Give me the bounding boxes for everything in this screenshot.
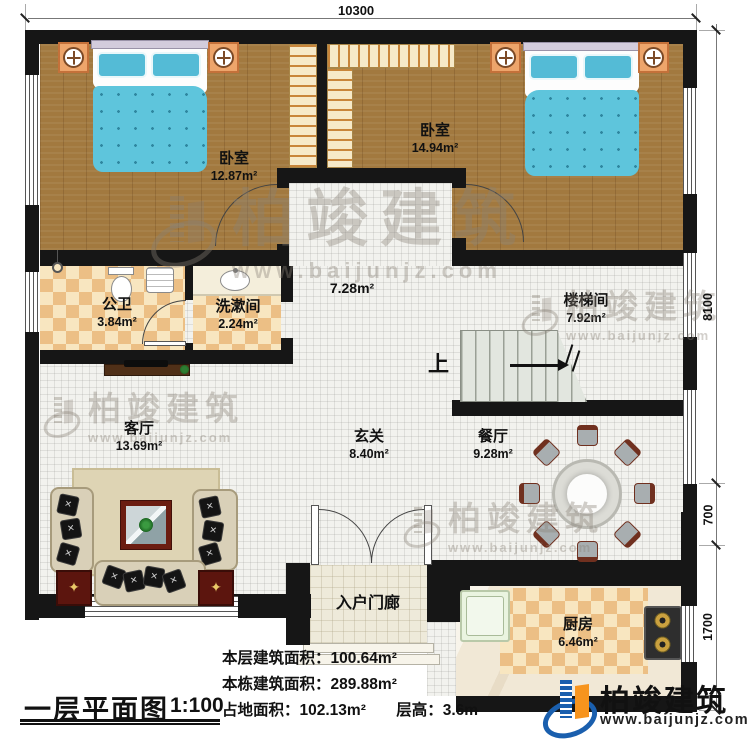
page-scale: 1:100 (170, 694, 224, 718)
room-label-washroom: 洗漱间 2.24m² (215, 298, 260, 332)
extension-line (699, 483, 725, 484)
dimension-label-right-mid: 700 (701, 505, 715, 526)
hall-notch-floor (289, 183, 452, 266)
toilet-tank (108, 267, 134, 275)
window-dining-right (683, 390, 697, 484)
nightstand (208, 42, 239, 73)
door-panel-bathroom (144, 341, 186, 346)
bathroom-name: 公卫 (97, 296, 137, 315)
kitchen-name: 厨房 (558, 616, 598, 635)
bed-pillow (529, 54, 579, 80)
bed-pillow (583, 54, 633, 80)
side-table (198, 570, 234, 606)
tv-icon (124, 360, 168, 367)
stat-label: 层高： (396, 702, 443, 719)
lamp-icon (643, 47, 664, 68)
stat-value: 289.88m² (331, 676, 397, 693)
wall-bath-divider-a (185, 266, 193, 300)
right-dimension-line (716, 24, 717, 712)
window-kitchen-right (681, 606, 697, 662)
kitchen-sink-basin (466, 596, 504, 636)
bed-headboard (523, 42, 641, 51)
washroom-name: 洗漱间 (215, 298, 260, 317)
window-bedroom1-left (25, 75, 39, 205)
wardrobe-bedroom2-side (327, 68, 353, 168)
plant-icon (180, 365, 189, 374)
dimension-label-right-lower: 1700 (701, 613, 715, 641)
stat-label: 占地面积： (222, 702, 300, 719)
top-dimension-line (28, 18, 696, 19)
wall-bedroom1-right-b (277, 244, 289, 266)
wall-under-closets (283, 168, 458, 183)
stairs-arrow-line (510, 364, 560, 367)
window-bathroom-left (25, 272, 39, 332)
nightstand (638, 42, 669, 73)
nightstand (490, 42, 521, 73)
brand-website: www.baijunjz.com (600, 712, 749, 728)
extension-line (699, 545, 725, 546)
stat-label: 本栋建筑面积： (222, 676, 331, 693)
wall-porch-left (286, 563, 310, 645)
dining-name: 餐厅 (473, 428, 513, 447)
bed-pillow (151, 52, 201, 78)
wardrobe-bedroom2-top (327, 44, 455, 68)
dining-chair (634, 483, 655, 504)
stat-value: 3.6m (443, 702, 478, 719)
stat-building-area: 本栋建筑面积：289.88m² (222, 672, 397, 694)
dimension-label-top: 10300 (338, 3, 374, 18)
room-label-hall: 7.28m² (330, 280, 374, 298)
lamp-icon (213, 47, 234, 68)
stairwell-name: 楼梯间 (563, 292, 608, 311)
extension-line (699, 30, 725, 31)
room-label-dining: 餐厅 9.28m² (473, 428, 513, 462)
sink-basin (220, 270, 250, 291)
plant-icon (139, 518, 153, 532)
stairwell-area: 7.92m² (563, 311, 608, 327)
room-label-living: 客厅 13.69m² (116, 420, 163, 454)
room-label-bedroom2: 卧室 14.94m² (412, 122, 459, 156)
title-underline (20, 719, 220, 725)
wall-kitchen-top (456, 560, 697, 586)
wall-washroom-right-a (281, 266, 293, 302)
living-area: 13.69m² (116, 439, 163, 455)
sofa-pillow (60, 518, 83, 541)
bed-duvet (525, 90, 639, 176)
bed-duvet (93, 86, 207, 172)
pendant-light-icon (52, 262, 63, 273)
window-stairwell-right (683, 253, 697, 337)
bathroom-area: 3.84m² (97, 315, 137, 331)
room-label-kitchen: 厨房 6.46m² (558, 616, 598, 650)
room-label-foyer: 玄关 8.40m² (349, 428, 389, 462)
sofa-pillow (56, 493, 80, 517)
kitchen-area: 6.46m² (558, 635, 598, 651)
stat-value: 102.13m² (300, 702, 366, 719)
stairs-up-label: 上 (428, 348, 449, 378)
dimension-label-right-upper: 8100 (701, 293, 715, 321)
wall-bedroom-divider (317, 30, 327, 170)
foyer-area: 8.40m² (349, 447, 389, 463)
sofa-pillow (198, 495, 222, 519)
washer-icon (146, 267, 174, 293)
floor-plan-canvas: 上 卧室 12.87m² 卧室 14.94m² 公卫 3.84m² (0, 0, 750, 745)
sofa-pillow (202, 520, 225, 543)
stat-land-area: 占地面积：102.13m² 层高：3.6m (222, 698, 478, 720)
wall-bedroom2-door-b (452, 238, 466, 266)
nightstand (58, 42, 89, 73)
living-name: 客厅 (116, 420, 163, 439)
dining-area: 9.28m² (473, 447, 513, 463)
wardrobe-bedroom1 (289, 44, 317, 168)
bed-pillow (97, 52, 147, 78)
lamp-icon (63, 47, 84, 68)
wall-stairs-bottom (452, 400, 683, 416)
side-table (56, 570, 92, 606)
burner-icon (654, 612, 671, 629)
room-label-bedroom1: 卧室 12.87m² (211, 150, 258, 184)
wall-bedroom2-door-a (452, 168, 466, 188)
dining-chair (577, 541, 598, 562)
brand-logo-icon (542, 676, 598, 736)
burner-icon (654, 636, 671, 653)
stat-label: 本层建筑面积： (222, 650, 331, 667)
wall-mid-left (40, 250, 277, 266)
room-label-porch: 入户门廊 (336, 594, 400, 614)
washroom-area: 2.24m² (215, 317, 260, 333)
bedroom2-name: 卧室 (412, 122, 459, 141)
dining-chair (577, 425, 598, 446)
faucet-icon (233, 268, 238, 273)
stat-floor-area: 本层建筑面积：100.64m² (222, 646, 397, 668)
foyer-name: 玄关 (349, 428, 389, 447)
bedroom1-area: 12.87m² (211, 169, 258, 185)
entry-door-left-panel (311, 505, 319, 565)
window-bedroom2-right (683, 88, 697, 194)
hall-area: 7.28m² (330, 280, 374, 298)
bed-headboard (91, 40, 209, 49)
porch-name: 入户门廊 (336, 594, 400, 614)
room-label-stairwell: 楼梯间 7.92m² (563, 292, 608, 326)
bedroom2-area: 14.94m² (412, 141, 459, 157)
entry-door-right-panel (424, 505, 432, 565)
bedroom1-name: 卧室 (211, 150, 258, 169)
dining-chair (519, 483, 540, 504)
wall-bedroom1-right-a (277, 168, 289, 188)
stat-value: 100.64m² (331, 650, 397, 667)
wall-mid-right (452, 250, 683, 266)
dining-table-top (566, 473, 608, 515)
lamp-icon (495, 47, 516, 68)
room-label-bathroom: 公卫 3.84m² (97, 296, 137, 330)
